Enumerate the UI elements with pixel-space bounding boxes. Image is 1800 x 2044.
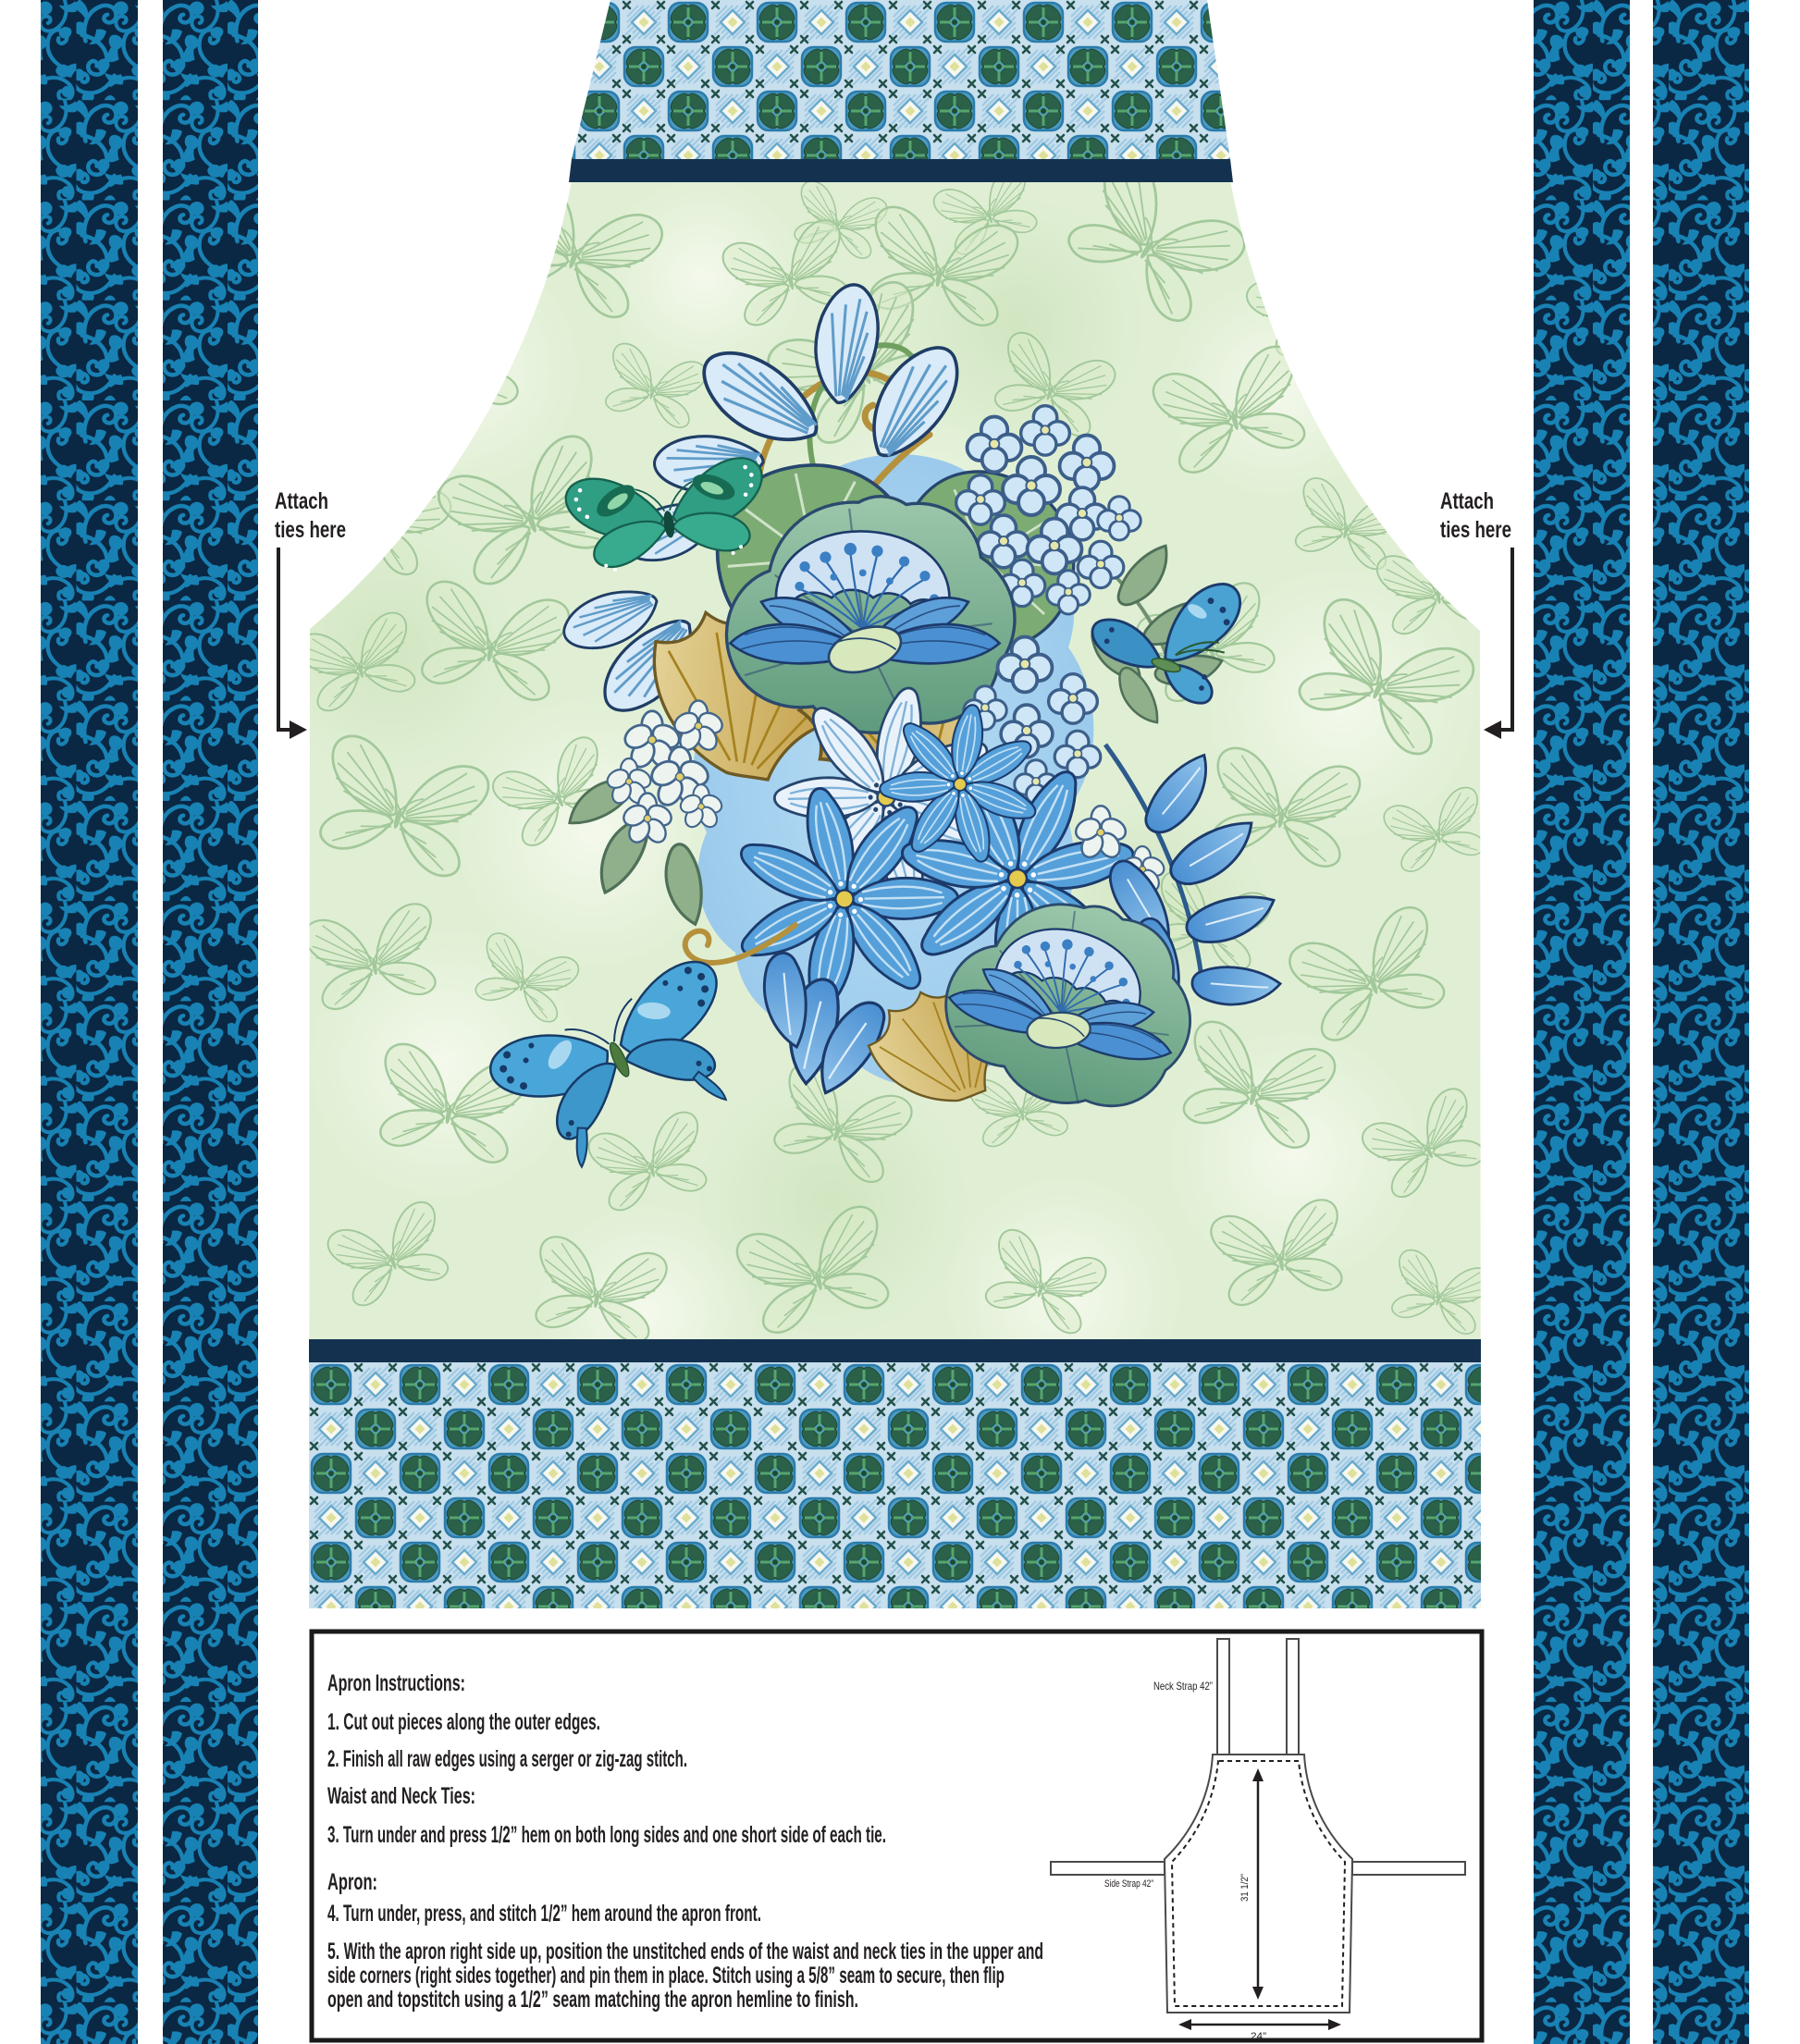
svg-text:Apron:: Apron: — [327, 1869, 377, 1895]
svg-text:3. Turn under and press 1/2”: 3. Turn under and press 1/2” hem on both… — [327, 1822, 886, 1848]
svg-text:side corners (right sides toge: side corners (right sides together) and … — [327, 1963, 1005, 1989]
svg-text:Side Strap 42”: Side Strap 42” — [1104, 1878, 1153, 1890]
svg-text:5. With the apron right side u: 5. With the apron right side up, positio… — [327, 1939, 1043, 1964]
svg-text:31 1/2”: 31 1/2” — [1239, 1874, 1251, 1902]
svg-text:Apron Instructions:: Apron Instructions: — [327, 1670, 465, 1696]
svg-text:ties here: ties here — [275, 517, 346, 543]
svg-text:1. Cut out pieces along the o: 1. Cut out pieces along the outer edges. — [327, 1709, 600, 1735]
svg-text:Attach: Attach — [1440, 488, 1494, 514]
svg-text:24”: 24” — [1251, 2031, 1266, 2042]
svg-text:2. Finish all raw edges using: 2. Finish all raw edges using a serger o… — [327, 1746, 687, 1772]
svg-text:Waist and Neck Ties:: Waist and Neck Ties: — [327, 1783, 475, 1809]
svg-text:ties here: ties here — [1440, 517, 1511, 543]
svg-text:open and topstitch using a 1/2: open and topstitch using a 1/2” seam mat… — [327, 1987, 858, 2013]
svg-text:Attach: Attach — [275, 488, 328, 514]
svg-text:Neck Strap 42”: Neck Strap 42” — [1153, 1680, 1213, 1693]
svg-text:4. Turn under, press, and sti: 4. Turn under, press, and stitch 1/2” he… — [327, 1901, 761, 1927]
